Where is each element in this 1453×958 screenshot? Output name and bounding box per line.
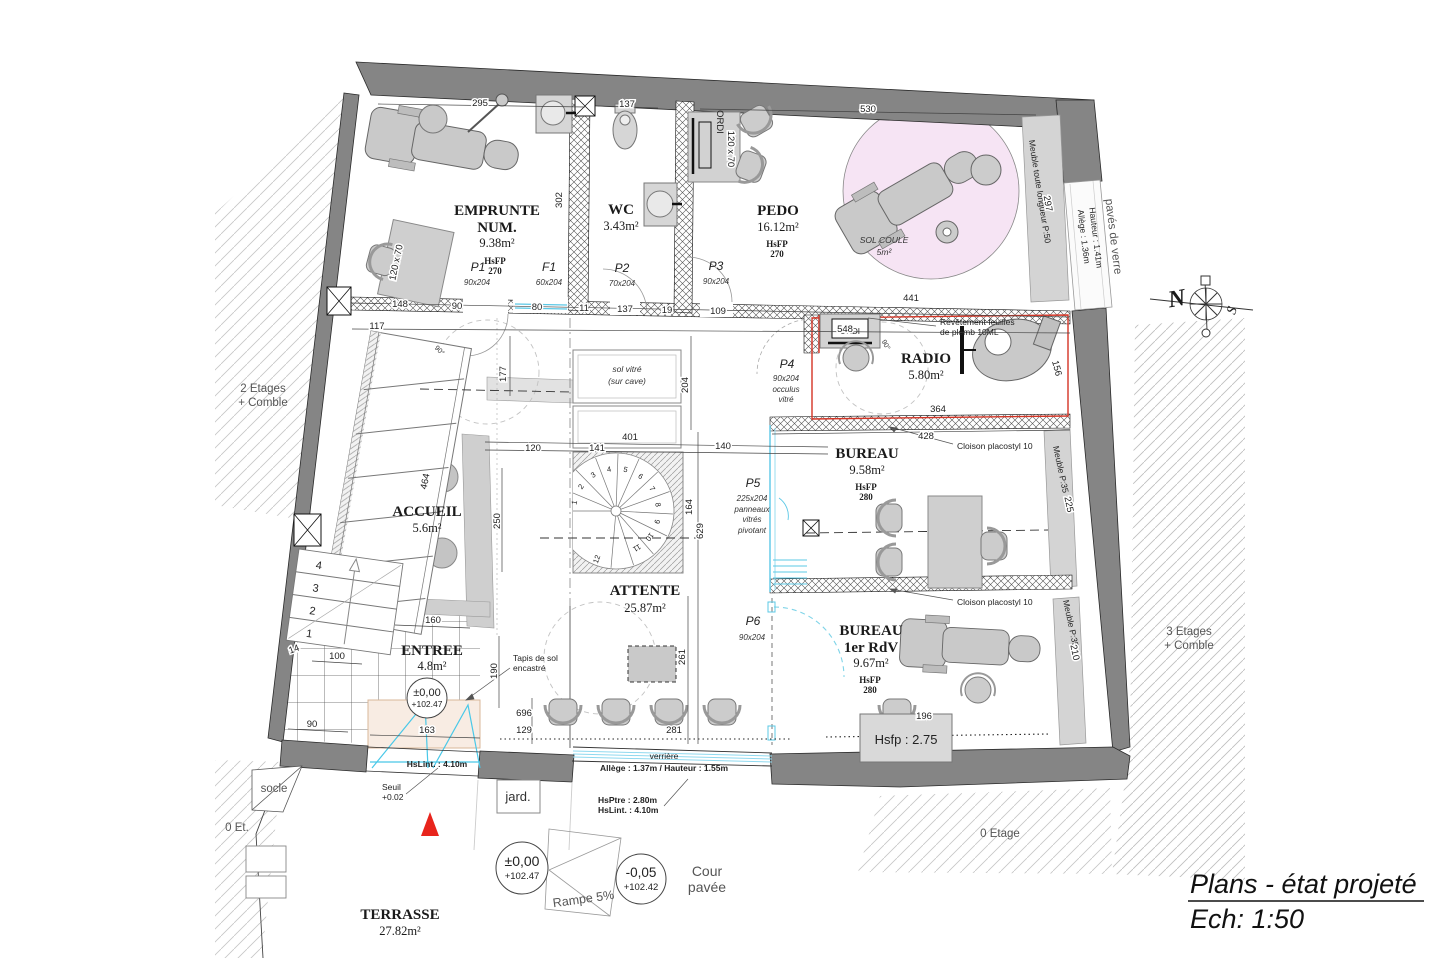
waiting-chair bbox=[651, 699, 687, 725]
level-terrasse-2: +102.47 bbox=[505, 871, 540, 882]
bureau-visitor-chair bbox=[876, 544, 902, 580]
room-emprunte-name2: NUM. bbox=[477, 220, 517, 236]
context-west-1: 2 Etages bbox=[240, 383, 286, 395]
door-p5-note2: vitrés bbox=[742, 515, 761, 524]
wc-sink bbox=[644, 183, 682, 226]
room-attente-name: ATTENTE bbox=[610, 583, 681, 599]
dim-148: 148 bbox=[392, 299, 408, 310]
door-p3-size: 90x204 bbox=[703, 277, 730, 286]
operator-stool bbox=[419, 105, 447, 133]
spiral-staircase: 1 2 3 4 5 6 7 8 9 10 11 12 bbox=[558, 452, 683, 573]
level-entree-2: +102.47 bbox=[412, 699, 443, 709]
pedo-unit bbox=[971, 155, 1001, 185]
door-p5-note3: pivotant bbox=[737, 526, 767, 535]
dim-250: 250 bbox=[492, 513, 503, 529]
room-pedo-area: 16.12m² bbox=[757, 220, 799, 234]
door-p2-size: 70x204 bbox=[609, 279, 636, 288]
door-p1-id: P1 bbox=[471, 260, 486, 274]
sol-coule-area: 5m² bbox=[877, 247, 893, 257]
door-p5-note1: panneaux bbox=[733, 505, 770, 514]
dim-164: 164 bbox=[684, 499, 695, 515]
sink-emprunte bbox=[536, 95, 576, 133]
room-pedo-name: PEDO bbox=[757, 203, 799, 219]
dim-204: 204 bbox=[680, 377, 691, 393]
room-emprunte-area: 9.38m² bbox=[479, 236, 515, 250]
allege-137-label: Allège : 1.37m / Hauteur : 1.55m bbox=[600, 763, 728, 773]
floor-plan-canvas: 4 3 2 1 1 2 3 4 5 6 7 8 9 10 11 12 bbox=[0, 0, 1453, 958]
dim-190: 190 bbox=[489, 663, 500, 679]
door-f1-id: F1 bbox=[542, 260, 556, 274]
dim-120: 120 bbox=[525, 443, 541, 454]
room-attente-area: 25.87m² bbox=[624, 601, 666, 615]
room-rdv-hsfp-val: 280 bbox=[863, 685, 877, 695]
cour-label1: Cour bbox=[692, 863, 723, 879]
room-radio-area: 5.80m² bbox=[908, 368, 944, 382]
dim-163: 163 bbox=[419, 725, 435, 736]
dim-261: 261 bbox=[677, 649, 688, 665]
sur-cave-label: (sur cave) bbox=[608, 376, 646, 386]
revetement-label2: de plomb 10ML bbox=[940, 327, 999, 337]
dim-401: 401 bbox=[622, 432, 638, 443]
dim-90: 90 bbox=[452, 301, 463, 312]
dim-19: 19 bbox=[662, 305, 673, 316]
et0-label: 0 Et. bbox=[225, 822, 249, 834]
bureau-visitor-chair bbox=[876, 500, 902, 536]
room-bureau-name: BUREAU bbox=[835, 446, 899, 462]
door-p3-id: P3 bbox=[709, 259, 724, 273]
door-p1-size: 90x204 bbox=[464, 278, 491, 287]
room-accueil-area: 5.6m² bbox=[412, 521, 441, 535]
door-p6-size: 90x204 bbox=[739, 633, 766, 642]
attente-table bbox=[628, 646, 676, 682]
socle-label: socle bbox=[261, 783, 288, 795]
window-icon bbox=[294, 514, 321, 546]
room-wc-name: WC bbox=[608, 202, 634, 218]
dim-295: 295 bbox=[472, 98, 488, 109]
room-emprunte-hsfp-val: 270 bbox=[488, 266, 502, 276]
dim-302: 302 bbox=[554, 192, 565, 208]
ordi-label-pedo: ORDI bbox=[714, 110, 725, 134]
dim-141: 141 bbox=[589, 443, 605, 454]
door-p5-id: P5 bbox=[746, 476, 761, 490]
room-radio-name: RADIO bbox=[901, 351, 951, 367]
waiting-chair bbox=[598, 699, 634, 725]
dim-100: 100 bbox=[329, 651, 345, 662]
dim-177: 177 bbox=[498, 366, 509, 382]
dim-80: 80 bbox=[532, 302, 543, 313]
seuil-label: Seuil bbox=[382, 782, 401, 792]
entry-steps: 4 3 2 1 bbox=[286, 549, 403, 655]
sol-coule-label: SOL COULE bbox=[860, 235, 909, 245]
context-east-2: + Comble bbox=[1164, 640, 1214, 652]
door-p6-id: P6 bbox=[746, 614, 761, 628]
dim-548: 548 bbox=[837, 324, 853, 335]
window-icon bbox=[327, 287, 351, 315]
room-pedo-hsfp-val: 270 bbox=[770, 249, 784, 259]
waiting-chair bbox=[545, 699, 581, 725]
plan-scale: Ech: 1:50 bbox=[1190, 904, 1304, 934]
dim-129: 129 bbox=[516, 725, 532, 736]
dim-11: 11 bbox=[579, 303, 589, 314]
sol-vitre-label: sol vitré bbox=[612, 364, 642, 374]
door-p4-id: P4 bbox=[780, 357, 795, 371]
dim-137-top: 137 bbox=[619, 99, 635, 110]
room-terrasse-area: 27.82m² bbox=[379, 924, 421, 938]
bureau-desk bbox=[928, 496, 982, 588]
wall-south-2 bbox=[478, 751, 574, 782]
dim-desk-pedo: 120 x 70 bbox=[725, 131, 736, 167]
room-rdv-name2: 1er RdV bbox=[844, 640, 898, 656]
dim-137-wall: 137 bbox=[617, 304, 633, 315]
dim-140: 140 bbox=[715, 441, 731, 452]
hslint-label: HsLint. : 4.10m bbox=[407, 759, 468, 769]
tapis-label2: encastré bbox=[513, 663, 546, 673]
dim-428: 428 bbox=[918, 431, 934, 442]
jard-label: jard. bbox=[504, 789, 530, 804]
etage0-label: 0 Etage bbox=[980, 828, 1020, 840]
dim-196: 196 bbox=[916, 711, 932, 722]
dim-364: 364 bbox=[930, 404, 946, 415]
door-p5-size: 225x204 bbox=[736, 494, 768, 503]
room-entree-area: 4.8m² bbox=[417, 659, 446, 673]
room-emprunte-hsfp: HsFP bbox=[484, 256, 506, 266]
room-pedo-hsfp: HsFP bbox=[766, 239, 788, 249]
tapis-label1: Tapis de sol bbox=[513, 653, 558, 663]
context-west-2: + Comble bbox=[238, 397, 288, 409]
dim-160: 160 bbox=[425, 615, 441, 626]
room-wc-area: 3.43m² bbox=[603, 219, 639, 233]
dim-109: 109 bbox=[710, 306, 726, 317]
waiting-chair bbox=[704, 699, 740, 725]
level-entree-1: ±0,00 bbox=[413, 687, 440, 699]
door-p4-note2: vitré bbox=[778, 395, 794, 404]
room-accueil-name: ACCUEIL bbox=[392, 504, 461, 520]
dim-530: 530 bbox=[860, 104, 876, 115]
wc-toilet bbox=[613, 104, 637, 149]
room-entree-name: ENTREE bbox=[401, 643, 463, 659]
compass-circle-icon bbox=[1202, 329, 1210, 337]
compass-square-icon bbox=[1201, 276, 1210, 285]
plan-title: Plans - état projeté bbox=[1190, 869, 1417, 899]
room-bureau-area: 9.58m² bbox=[849, 463, 885, 477]
door-p2-id: P2 bbox=[615, 261, 630, 275]
revetement-label1: Revêtement feuilles bbox=[940, 317, 1015, 327]
pedo-spittoon-bowl bbox=[943, 228, 951, 236]
hslint2-label: HsLint. : 4.10m bbox=[598, 805, 659, 815]
cour-label2: pavée bbox=[688, 879, 726, 895]
cloison-label-2: Cloison placostyl 10 bbox=[957, 597, 1033, 607]
room-bureau-hsfp-val: 280 bbox=[859, 492, 873, 502]
bureau-desk-chair bbox=[981, 528, 1007, 564]
room-rdv-area: 9.67m² bbox=[853, 656, 889, 670]
dim-441: 441 bbox=[903, 293, 919, 304]
door-p4-size: 90x204 bbox=[773, 374, 800, 383]
dim-696: 696 bbox=[516, 708, 532, 719]
room-terrasse-name: TERRASSE bbox=[360, 907, 439, 923]
verriere-label: verrière bbox=[650, 751, 679, 761]
window-icon bbox=[575, 96, 595, 116]
dim-281: 281 bbox=[666, 725, 682, 736]
context-east-1: 3 Etages bbox=[1166, 626, 1212, 638]
cloison-label-1: Cloison placostyl 10 bbox=[957, 441, 1033, 451]
dim-629: 629 bbox=[695, 523, 706, 539]
door-p4-note1: occulus bbox=[772, 385, 799, 394]
room-rdv-name: BUREAU bbox=[839, 623, 903, 639]
room-emprunte-name: EMPRUNTE bbox=[454, 203, 540, 219]
door-f1-size: 60x204 bbox=[536, 278, 563, 287]
room-bureau-hsfp: HsFP bbox=[855, 482, 877, 492]
level-terrasse-1: ±0,00 bbox=[505, 853, 540, 869]
floor-plan-svg: 4 3 2 1 1 2 3 4 5 6 7 8 9 10 11 12 bbox=[0, 0, 1453, 958]
hsptre-label: HsPtre : 2.80m bbox=[598, 795, 657, 805]
dim-90-sw: 90 bbox=[307, 719, 318, 730]
window-icon bbox=[803, 520, 819, 536]
delivery-arm-head bbox=[496, 94, 508, 106]
seuil-value: +0.02 bbox=[382, 792, 404, 802]
room-rdv-hsfp: HsFP bbox=[859, 675, 881, 685]
dim-117: 117 bbox=[369, 321, 384, 332]
level-cour-2: +102.42 bbox=[624, 882, 659, 893]
level-cour-1: -0,05 bbox=[626, 865, 657, 880]
hsfp-275-label: Hsfp : 2.75 bbox=[875, 732, 938, 747]
